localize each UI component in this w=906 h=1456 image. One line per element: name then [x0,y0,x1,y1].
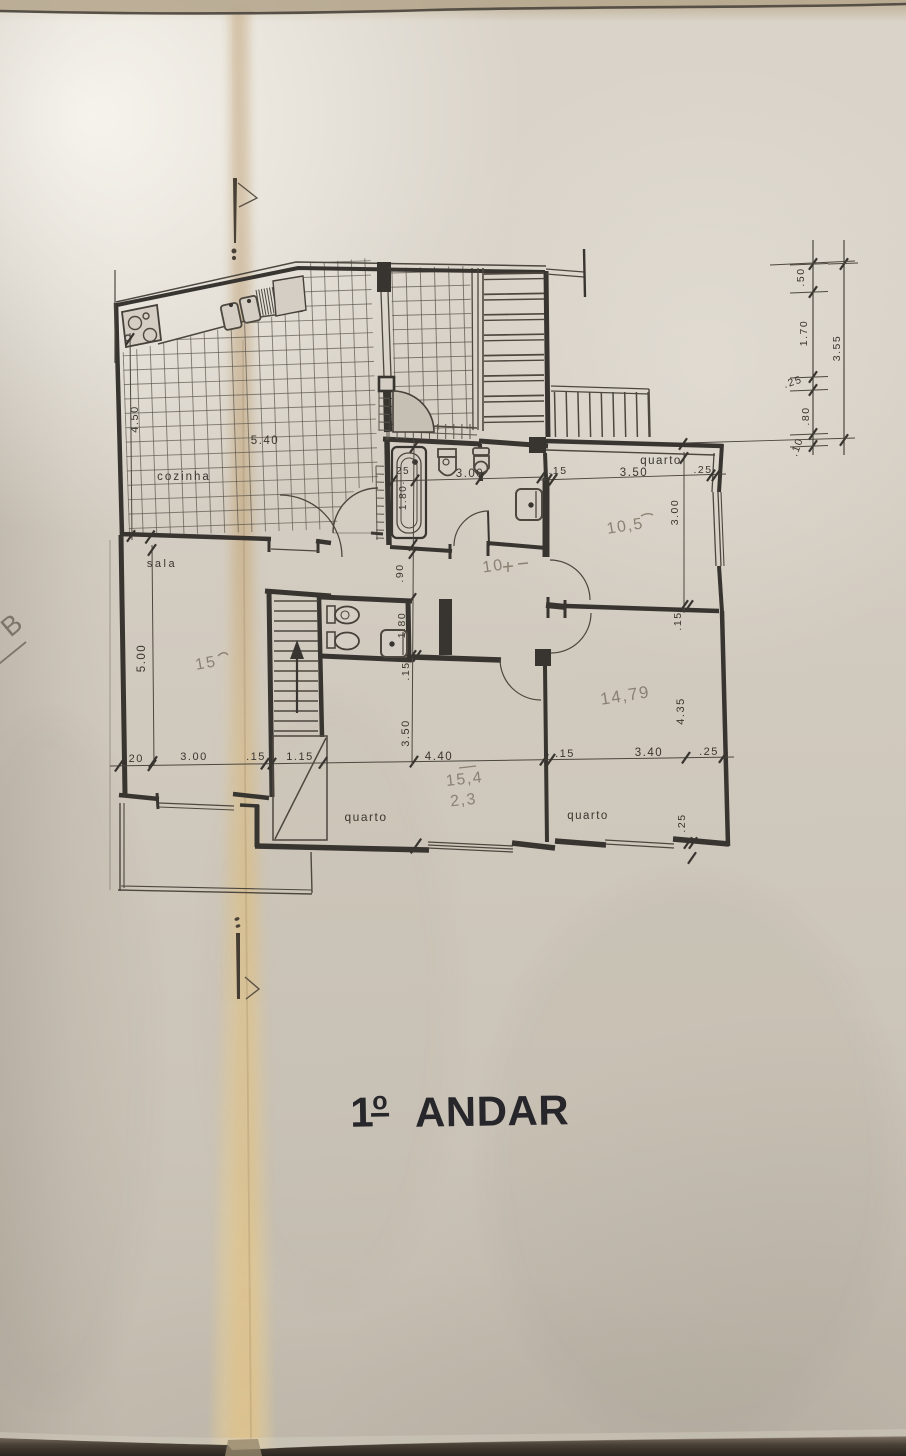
svg-text:4.35: 4.35 [675,697,687,724]
svg-text:3.40: 3.40 [635,747,663,759]
svg-text:sala: sala [147,558,177,570]
svg-text:o: o [372,1087,388,1115]
svg-text:.15: .15 [246,751,266,763]
svg-text:.80: .80 [800,406,812,425]
svg-text:3.55: 3.55 [831,335,843,361]
svg-text:10,5: 10,5 [606,515,645,538]
svg-text:25: 25 [396,466,410,477]
svg-text:.25: .25 [676,813,688,832]
svg-text:.10: .10 [788,436,806,458]
svg-text:cozinha: cozinha [157,471,211,483]
svg-text:.15: .15 [672,611,684,630]
svg-text:quarto: quarto [344,810,387,824]
svg-text:.15: .15 [400,661,412,680]
svg-text:1.70: 1.70 [798,320,810,346]
svg-text:.25: .25 [699,746,719,758]
svg-text:quarto: quarto [567,810,609,822]
svg-text:.90: .90 [394,563,406,582]
svg-text:15: 15 [194,653,218,674]
svg-text:ANDAR: ANDAR [415,1086,570,1135]
svg-text:3.00: 3.00 [669,499,681,525]
svg-text:.15: .15 [548,465,567,477]
svg-text:2,3: 2,3 [449,791,477,811]
svg-text:1.80: 1.80 [396,612,408,638]
svg-text:1.80·: 1.80· [398,480,409,510]
svg-text:.25: .25 [782,373,804,390]
svg-text:10: 10 [481,557,505,577]
svg-text:14,79: 14,79 [599,682,651,709]
svg-text:3.00: 3.00 [180,751,207,763]
svg-text:3.50: 3.50 [400,719,412,746]
svg-text:3.50: 3.50 [620,467,648,479]
svg-text:5.40: 5.40 [251,435,279,447]
svg-text:4.50: 4.50 [129,405,141,432]
svg-text:.50: .50 [795,267,807,286]
svg-text:5.00: 5.00 [136,644,148,672]
svg-text:3.00: 3.00 [456,468,484,480]
svg-text:quarto: quarto [640,455,682,467]
svg-text:4.40: 4.40 [425,751,453,763]
svg-text:.20: .20 [124,753,144,765]
svg-text:.15: .15 [555,748,575,760]
svg-text:1.15: 1.15 [286,751,313,763]
svg-text:15,4: 15,4 [445,769,484,790]
svg-text:.25: .25 [693,464,712,476]
svg-text:1: 1 [350,1088,374,1135]
